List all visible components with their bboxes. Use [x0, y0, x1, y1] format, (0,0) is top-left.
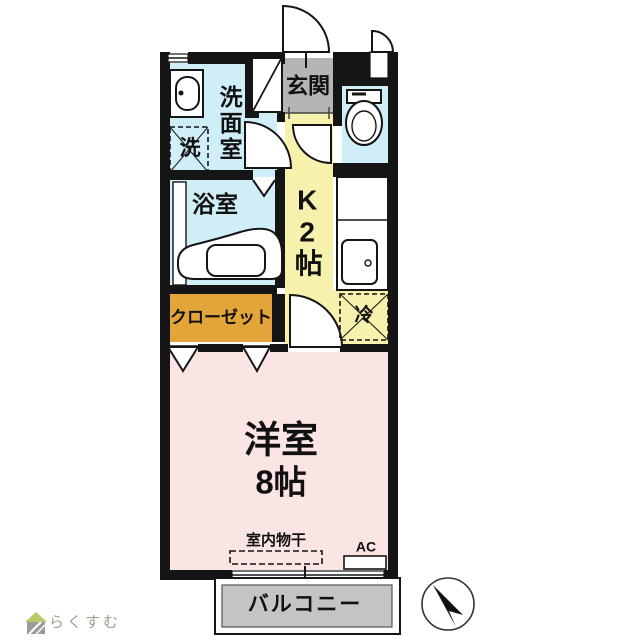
kitchen-counter [337, 177, 388, 290]
washroom-door-arc [245, 122, 291, 168]
fridge-label: 冷 [354, 306, 373, 326]
floorplan-page: 玄関 洗面室 洗 浴室 K2帖 冷 クローゼット 洋室 8帖 室内物干 AC バ… [0, 0, 640, 640]
laundry-label: 洗 [180, 138, 201, 160]
indoor-drying-box [230, 551, 322, 564]
main-room-size-label: 8帖 [255, 466, 306, 501]
main-room-name-label: 洋室 [244, 422, 318, 461]
bathroom-label: 浴室 [192, 192, 238, 216]
toilet-door-arc [293, 125, 331, 163]
ac-label: AC [356, 540, 376, 555]
small-door-arc [372, 31, 393, 52]
genkan-label: 玄関 [286, 74, 330, 97]
kitchen-door-arc [290, 295, 342, 347]
closet-label: クローゼット [170, 309, 272, 327]
entrance-door-arc [283, 6, 329, 52]
ac-box [344, 556, 386, 569]
washroom-label: 洗面室 [217, 85, 241, 163]
balcony-label: バルコニー [248, 594, 363, 616]
logo-text: らくすむ [49, 615, 121, 631]
north-arrow-icon [422, 578, 474, 630]
toilet-icon [346, 90, 382, 145]
washbasin-icon [170, 70, 203, 117]
house-icon [25, 612, 47, 634]
indoor-drying-label: 室内物干 [246, 533, 306, 549]
bath-folding-door [253, 180, 275, 196]
hall-door-leaf [252, 58, 282, 112]
kitchen-sink-icon [342, 240, 377, 284]
kitchen-label: K2帖 [292, 185, 321, 278]
